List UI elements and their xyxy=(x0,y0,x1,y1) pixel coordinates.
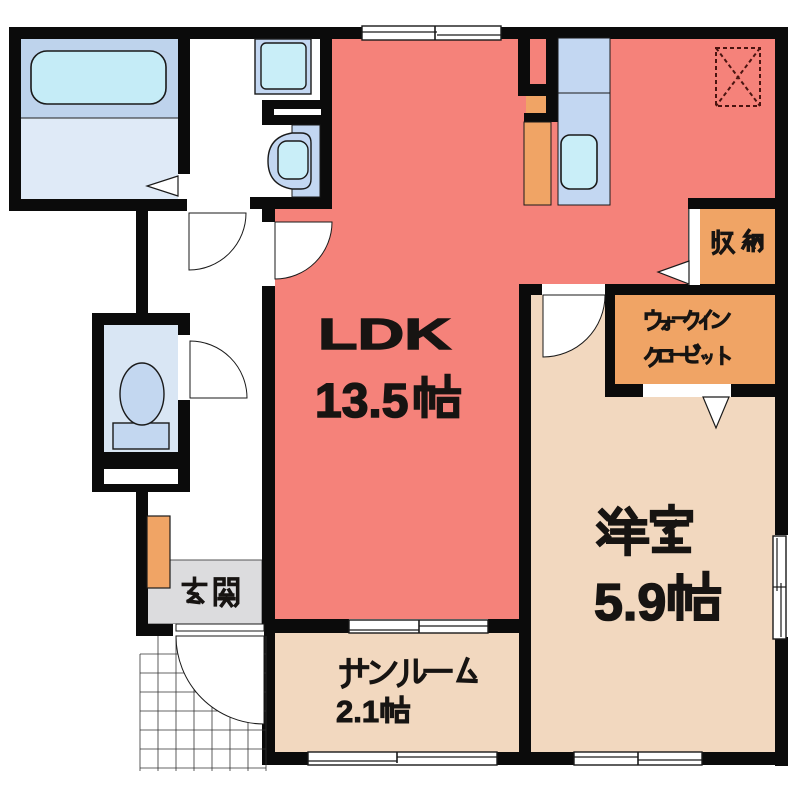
svg-text:5.9: 5.9 xyxy=(594,574,666,632)
svg-text:13.5: 13.5 xyxy=(315,375,408,428)
svg-text:LDK: LDK xyxy=(318,310,451,359)
svg-text:2.1: 2.1 xyxy=(336,694,379,729)
